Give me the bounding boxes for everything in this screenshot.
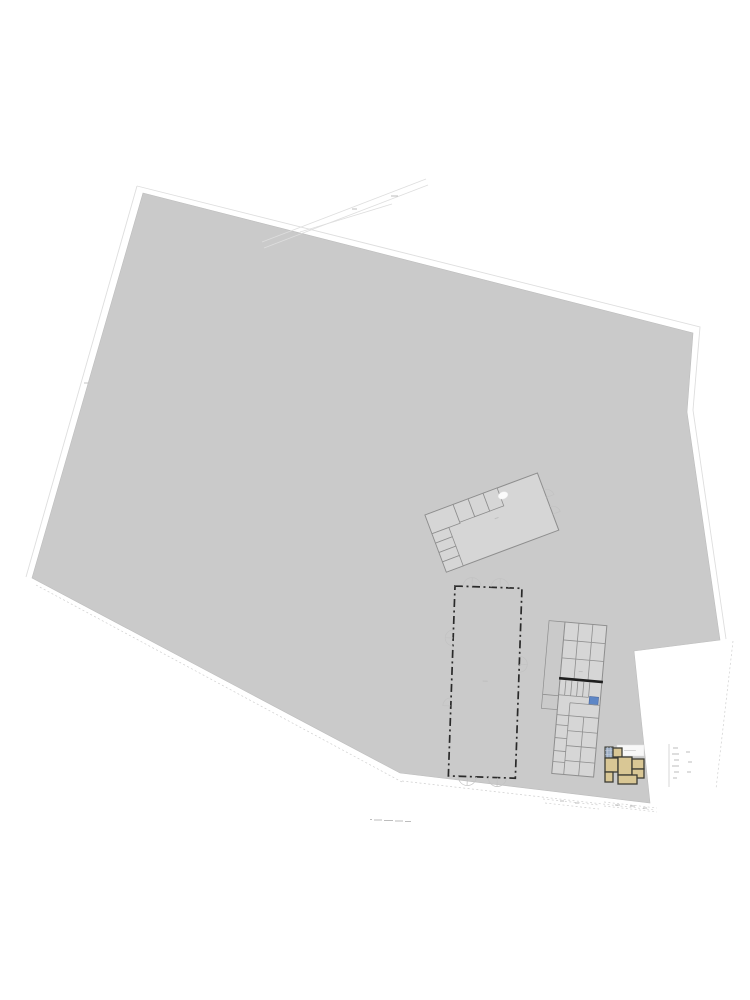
annotation-marks-right-of-house [672,748,692,778]
house-room-top [613,748,622,757]
road-line [300,204,392,232]
boundary-dotted-right [716,641,733,789]
house-tiled-room [605,747,613,758]
house-room-bottom [618,775,637,784]
illegible-caption-marks [370,820,411,822]
house-building [605,745,644,784]
site-plan-drawing [0,0,750,1000]
road-line [262,179,426,242]
parcel-area [32,193,720,803]
dimension-marks-bottom-right [560,801,647,808]
house-room-right [632,759,644,769]
house-room-center [618,757,632,775]
stable-water-feature [589,696,599,705]
house-room-left [605,758,618,772]
house-room-bottom-left [605,772,613,782]
road-annotation-marks [352,196,398,209]
